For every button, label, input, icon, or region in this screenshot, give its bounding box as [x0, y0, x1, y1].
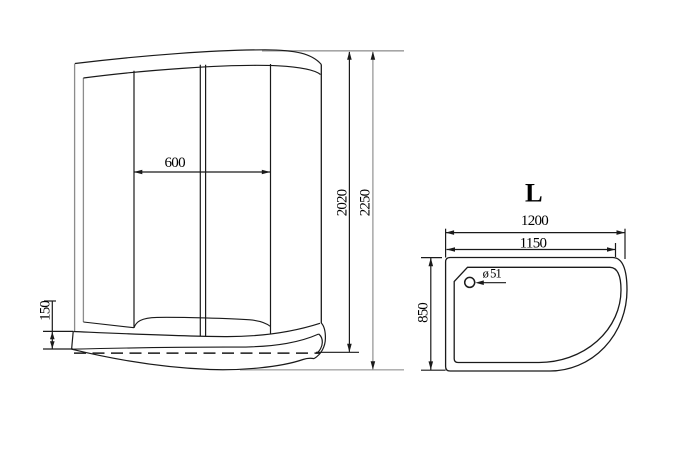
svg-text:850: 850 [416, 303, 432, 323]
svg-text:600: 600 [164, 155, 185, 171]
svg-text:1200: 1200 [521, 213, 548, 229]
svg-text:ø 51: ø 51 [483, 267, 502, 281]
svg-text:L: L [525, 178, 543, 208]
svg-text:1150: 1150 [520, 235, 547, 251]
svg-text:150: 150 [37, 301, 53, 321]
svg-text:2250: 2250 [357, 189, 373, 216]
svg-text:2020: 2020 [334, 189, 350, 216]
